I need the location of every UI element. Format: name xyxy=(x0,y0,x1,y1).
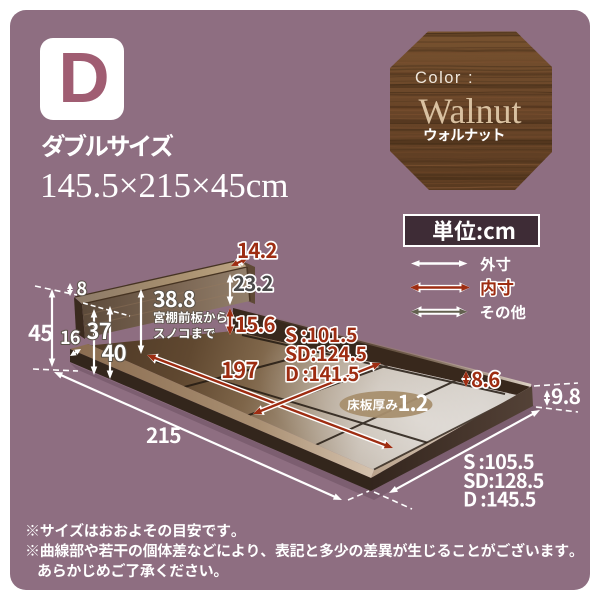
svg-text:145.5×215×45cm: 145.5×215×45cm xyxy=(40,166,289,205)
svg-text:D: D xyxy=(58,39,109,118)
svg-text:Walnut: Walnut xyxy=(418,91,521,131)
svg-text:Color :: Color : xyxy=(415,69,474,87)
